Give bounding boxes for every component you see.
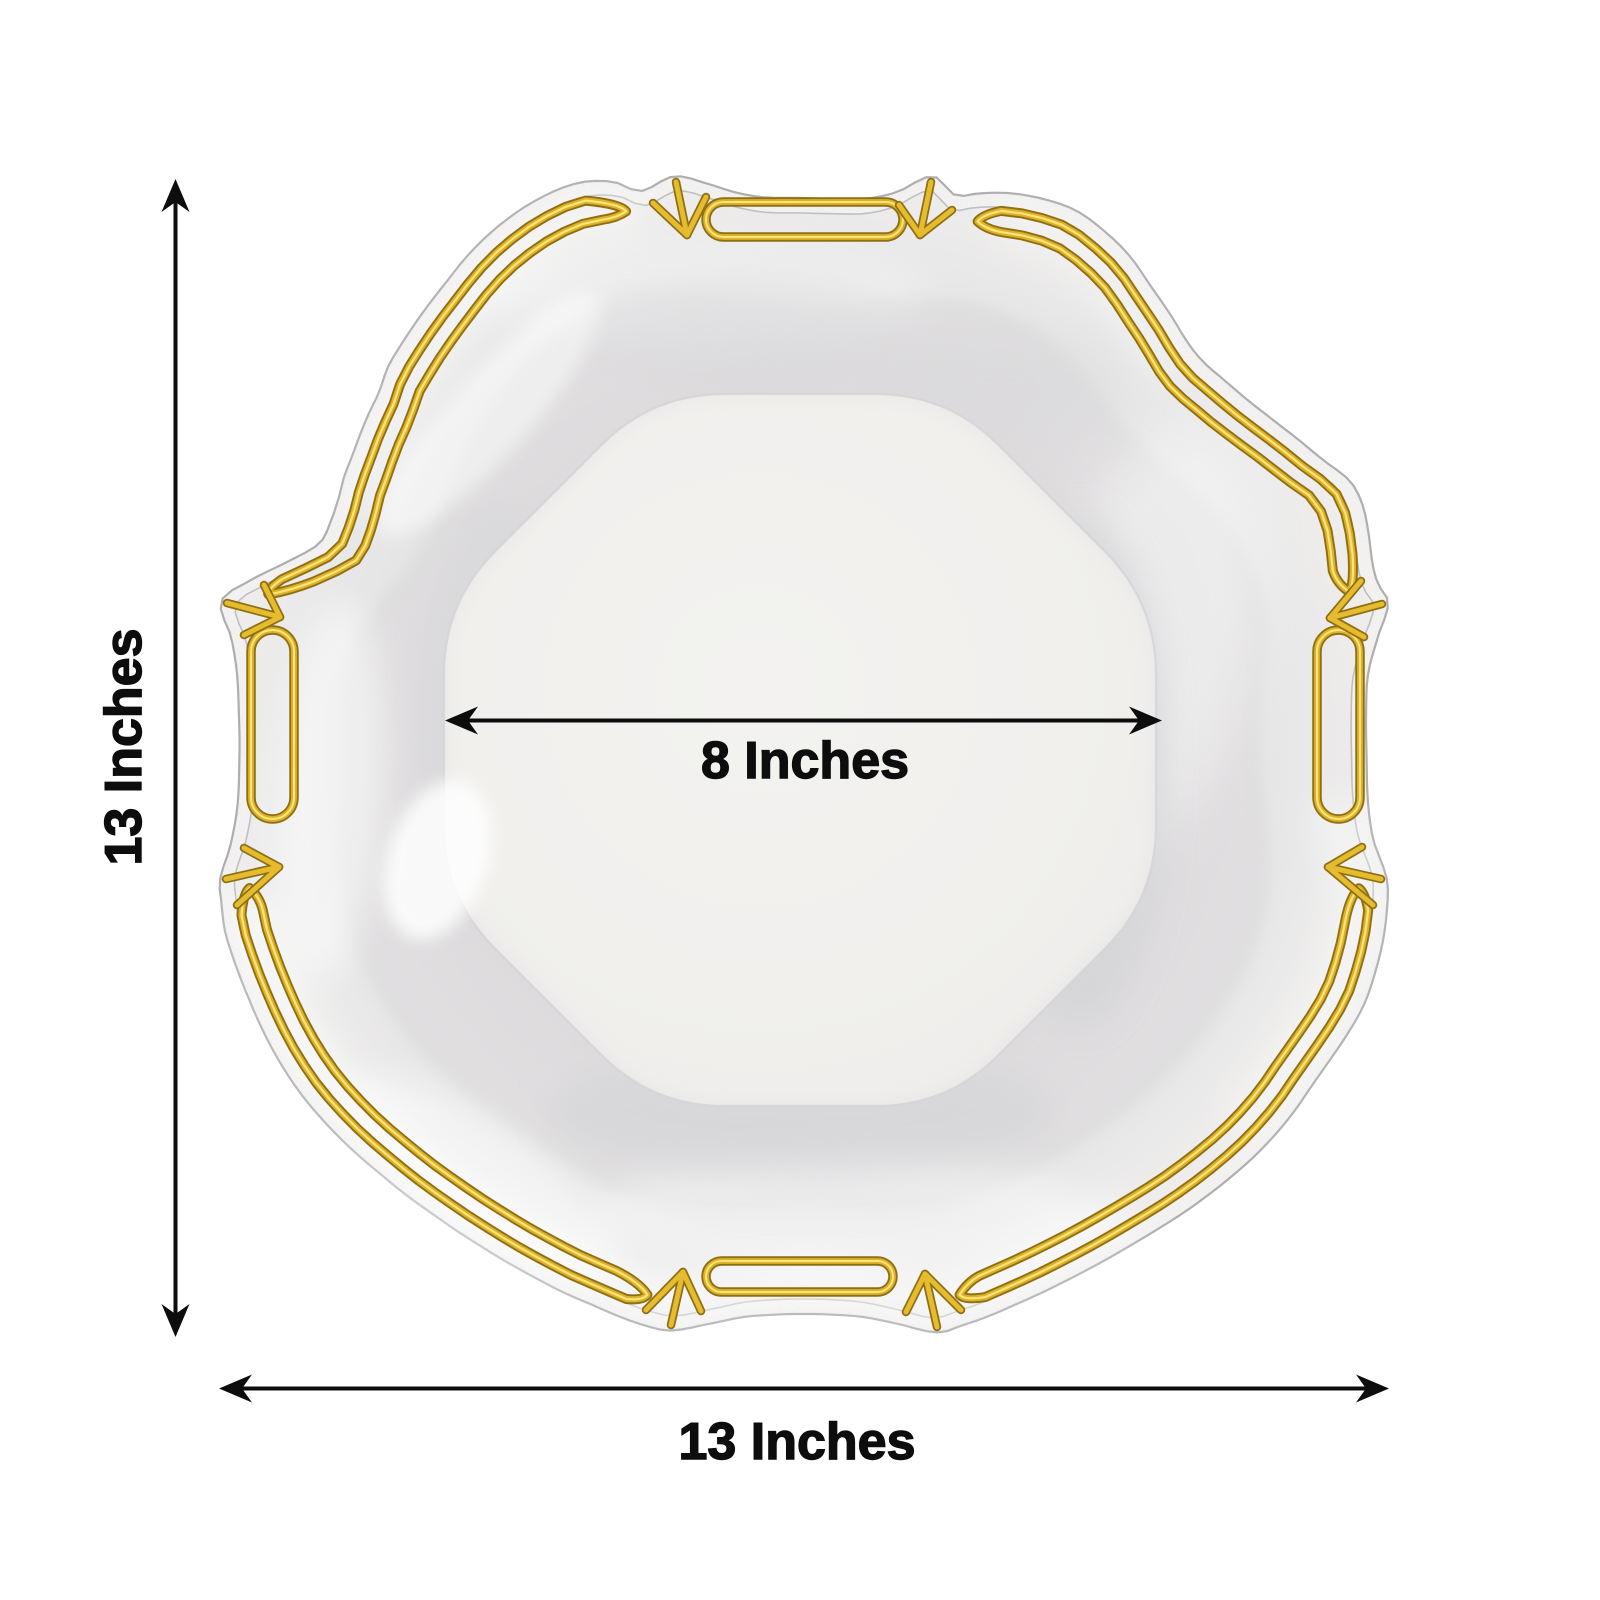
- svg-text:8 Inches: 8 Inches: [701, 732, 909, 790]
- svg-text:13 Inches: 13 Inches: [678, 1413, 915, 1471]
- svg-text:13 Inches: 13 Inches: [95, 628, 153, 865]
